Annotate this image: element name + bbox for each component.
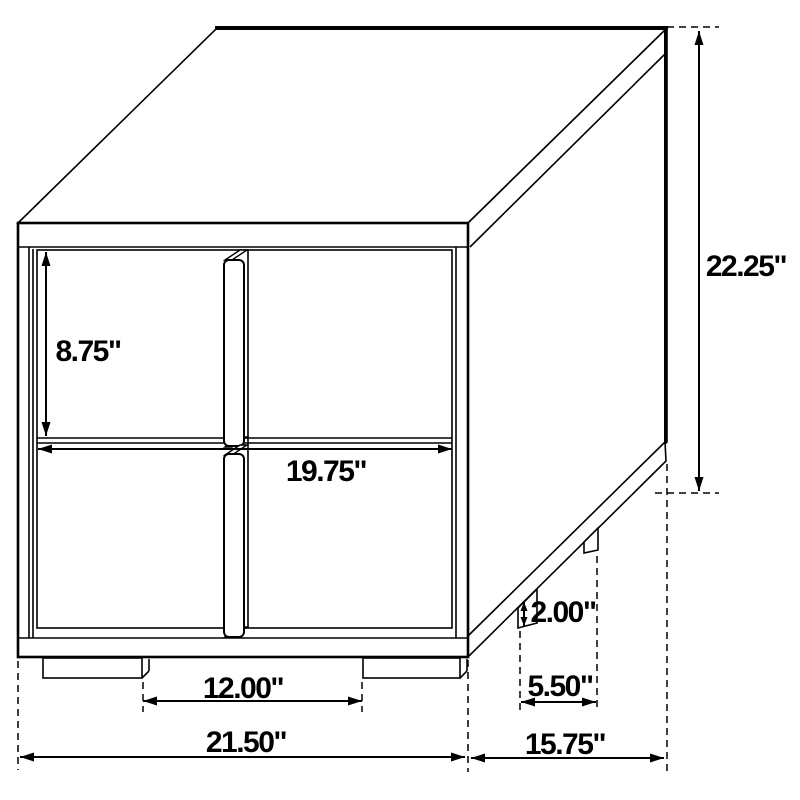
dimension-diagram: 8.75" 22.25" 19.75" 12.00" 21.50" 2.00" … <box>0 0 800 800</box>
dim-label-overall-depth: 15.75" <box>525 728 606 761</box>
dim-label-overall-height: 22.25" <box>706 250 787 283</box>
top-drawer-handle <box>224 260 244 446</box>
dim-label-drawer-height: 8.75" <box>55 335 120 368</box>
dim-label-side-foot-spacing: 5.50" <box>527 670 592 703</box>
dim-label-base-height: 2.00" <box>530 596 595 629</box>
front-foot-right-bevel <box>460 671 467 678</box>
dim-label-overall-width: 21.50" <box>206 726 287 759</box>
bottom-drawer-handle <box>224 454 244 637</box>
front-foot-left <box>43 658 142 678</box>
front-foot-left-bevel <box>142 671 149 678</box>
dim-label-front-foot-spacing: 12.00" <box>203 672 284 705</box>
diagram-svg: 8.75" 22.25" 19.75" 12.00" 21.50" 2.00" … <box>0 0 800 800</box>
dim-label-drawer-width: 19.75" <box>286 455 367 488</box>
front-foot-right <box>363 658 460 678</box>
